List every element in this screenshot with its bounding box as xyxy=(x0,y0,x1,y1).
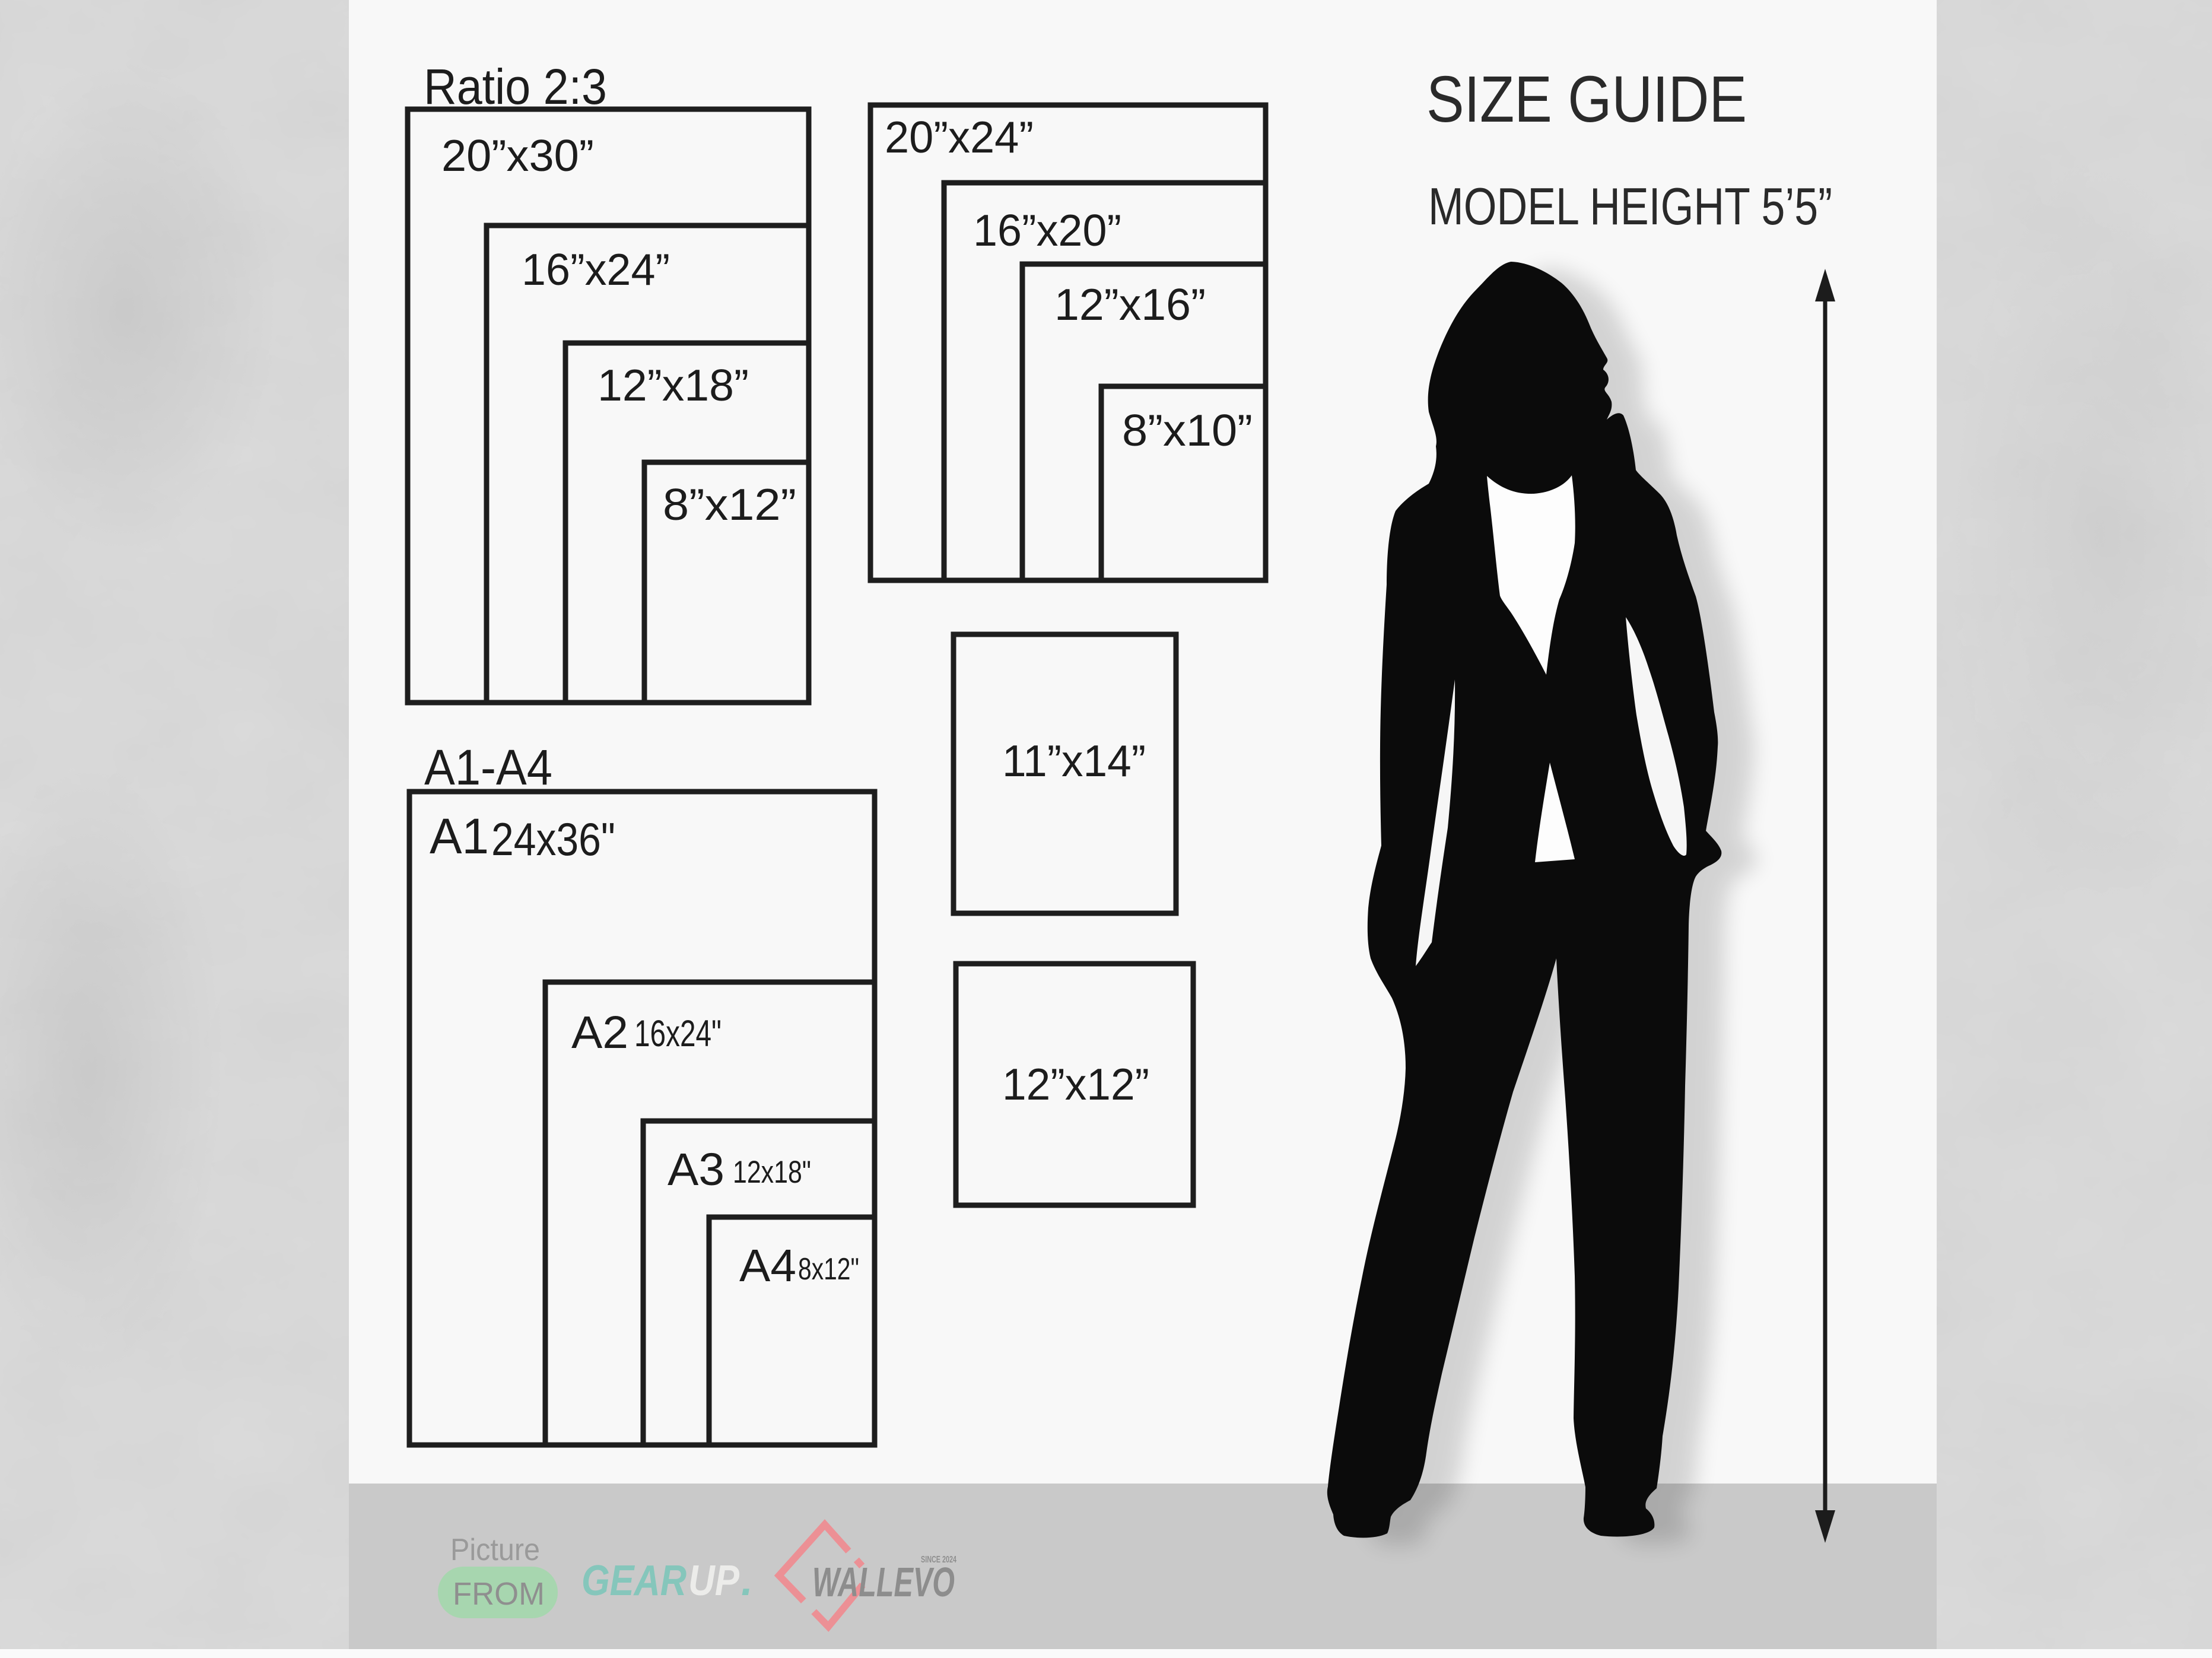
svg-text:A2: A2 xyxy=(571,1007,628,1058)
svg-text:8”x12”: 8”x12” xyxy=(663,479,796,529)
svg-text:Ratio 2:3: Ratio 2:3 xyxy=(424,59,607,115)
svg-text:8”x10”: 8”x10” xyxy=(1122,405,1253,455)
svg-text:16”x20”: 16”x20” xyxy=(973,205,1121,255)
svg-text:16x24": 16x24" xyxy=(634,1013,722,1054)
svg-text:24x36": 24x36" xyxy=(491,813,615,865)
svg-text:12”x12”: 12”x12” xyxy=(1002,1059,1149,1109)
svg-text:GEAR: GEAR xyxy=(581,1557,687,1605)
svg-text:.: . xyxy=(741,1557,753,1605)
svg-text:A3: A3 xyxy=(668,1144,724,1195)
svg-text:20”x24”: 20”x24” xyxy=(885,112,1034,162)
svg-text:A1-A4: A1-A4 xyxy=(424,739,552,795)
svg-text:8x12": 8x12" xyxy=(798,1252,859,1287)
svg-text:12x18": 12x18" xyxy=(733,1155,811,1190)
svg-text:Picture: Picture xyxy=(450,1533,540,1567)
svg-text:UP: UP xyxy=(688,1557,740,1605)
svg-text:12”x18”: 12”x18” xyxy=(598,360,749,410)
svg-text:FROM: FROM xyxy=(453,1576,545,1612)
svg-text:A4: A4 xyxy=(739,1240,796,1291)
svg-text:11”x14”: 11”x14” xyxy=(1002,736,1146,786)
svg-text:12”x16”: 12”x16” xyxy=(1054,279,1206,329)
svg-text:A1: A1 xyxy=(430,808,489,864)
svg-text:MODEL HEIGHT 5’5”: MODEL HEIGHT 5’5” xyxy=(1428,177,1832,236)
svg-text:16”x24”: 16”x24” xyxy=(522,244,670,294)
svg-text:WALLEVO: WALLEVO xyxy=(812,1559,955,1605)
svg-text:20”x30”: 20”x30” xyxy=(441,131,594,180)
svg-text:SIZE GUIDE: SIZE GUIDE xyxy=(1426,63,1747,136)
